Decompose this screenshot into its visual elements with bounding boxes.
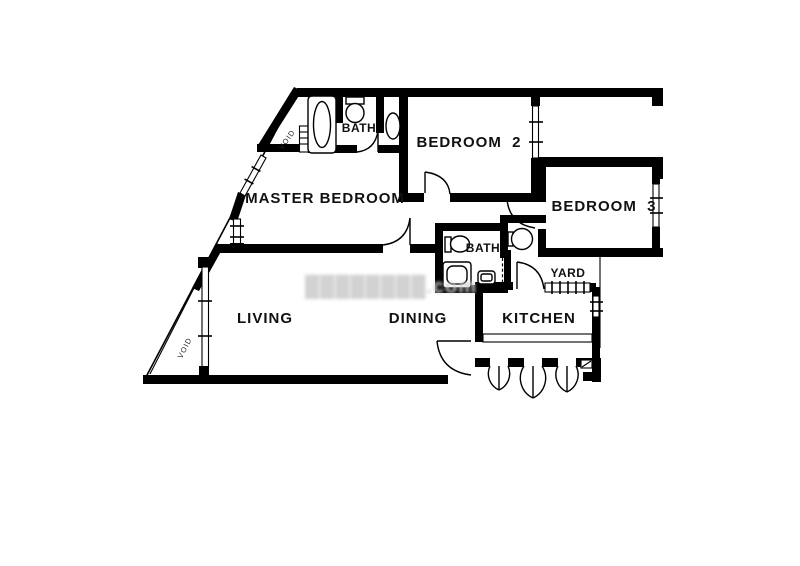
room-label-void-lower: VOID [176, 336, 194, 360]
room-label-bedroom3: BEDROOM 3 [551, 198, 656, 215]
floor-plan-page: ████████.com MASTER BEDROOM BATH BEDROOM… [0, 0, 800, 566]
room-labels: MASTER BEDROOM BATH BEDROOM 2 BEDROOM 3 … [176, 121, 657, 360]
room-label-bath-mid: BATH [466, 241, 500, 255]
hatch-box [581, 360, 592, 368]
sink-bath2 [478, 271, 495, 284]
sink-bath1 [386, 113, 400, 139]
bath2-top-wall [435, 223, 508, 231]
room-label-master-bedroom: MASTER BEDROOM [245, 190, 405, 207]
tub-divider-wall [336, 95, 343, 123]
upper-diagonal-wall [258, 87, 302, 149]
window [202, 267, 209, 368]
bedroom3-left-wall-a [538, 157, 546, 199]
top-wall [297, 88, 663, 97]
room-label-bath-top: BATH [342, 121, 376, 135]
door-swing-dining-kitchen [437, 341, 471, 375]
kitchen-exterior-door-swings [488, 366, 578, 398]
door-swing-bedroom3 [507, 199, 535, 228]
door-swing-bedroom2 [425, 172, 450, 194]
window [234, 219, 241, 244]
bathtub [308, 96, 336, 153]
duct-shaft [300, 126, 309, 152]
top-wall-end-cap [652, 88, 663, 106]
alcove-side-wall [504, 250, 511, 284]
window [593, 296, 599, 317]
void-lower-hypotenuse [150, 288, 194, 374]
bath1-sink-divider-wall [376, 95, 384, 133]
room-label-yard: YARD [551, 266, 586, 280]
alcove-top-wall [500, 215, 546, 223]
room-label-kitchen: KITCHEN [502, 310, 576, 327]
room-label-dining: DINING [389, 310, 448, 327]
bedroom3-top-wall [540, 157, 663, 167]
room-label-living: LIVING [237, 310, 293, 327]
window [533, 106, 539, 158]
wash-basin [508, 229, 533, 250]
kitchen-counter [483, 334, 592, 342]
bedroom3-bottom-wall [538, 248, 663, 257]
bedroom2-bottom-wall-a [408, 193, 424, 202]
door-swing-master-bedroom [383, 218, 410, 245]
bottom-wall [143, 375, 448, 384]
master-bottom-wall [216, 244, 383, 253]
door-swing-yard [517, 262, 544, 289]
watermark-text: ████████.com [305, 274, 477, 300]
floor-plan: ████████.com MASTER BEDROOM BATH BEDROOM… [0, 0, 800, 566]
toilet-bath1 [346, 97, 364, 123]
room-label-bedroom2: BEDROOM 2 [416, 134, 521, 151]
mid-diagonal-wall [229, 192, 246, 222]
master-top-wall-b [378, 145, 408, 153]
interior-walls [216, 88, 663, 382]
